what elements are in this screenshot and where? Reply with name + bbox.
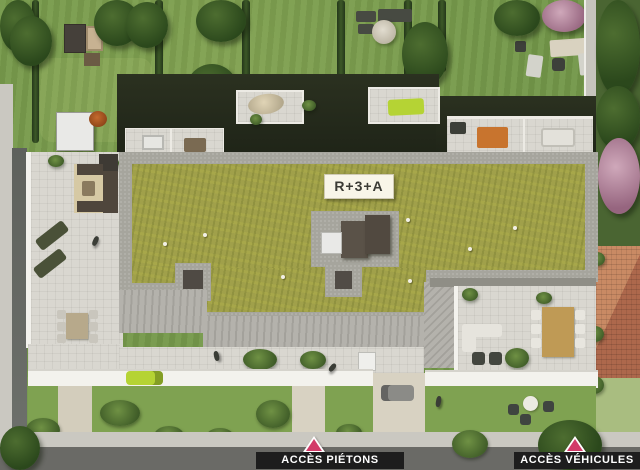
skylight: [321, 232, 342, 254]
chair: [520, 414, 531, 425]
side-table: [82, 181, 95, 196]
neighbour-roof: [596, 246, 640, 380]
chair: [508, 404, 519, 415]
orange-rug: [477, 127, 508, 148]
planter-bush: [250, 114, 262, 125]
pedestrian-access-marker[interactable]: [303, 436, 325, 452]
car-gray: [381, 385, 414, 401]
wall-shadow: [12, 148, 27, 430]
tree: [494, 0, 540, 36]
planter: [450, 122, 466, 134]
bush: [300, 351, 326, 369]
roof-vent: [163, 242, 167, 246]
bush: [256, 400, 290, 428]
orange-shrub: [89, 111, 107, 127]
tree: [10, 16, 52, 66]
vehicle-access-marker[interactable]: [564, 436, 586, 452]
chair: [575, 310, 585, 320]
tree: [196, 0, 246, 42]
bush: [452, 430, 488, 458]
chair: [57, 310, 66, 319]
building-lot-label[interactable]: R+3+A: [324, 174, 394, 199]
ottoman: [489, 352, 502, 365]
chair: [57, 334, 66, 343]
kitchen-counter: [77, 164, 103, 175]
garden-sofa: [356, 11, 376, 22]
dining-table: [66, 313, 88, 339]
bush: [462, 288, 478, 301]
dining-table: [542, 307, 574, 357]
chair: [531, 338, 541, 348]
sloped-roof: [424, 282, 458, 368]
green-roof: [132, 266, 180, 283]
outdoor-sofa: [462, 324, 476, 352]
rooftop-equipment: [341, 221, 368, 258]
roof-vent: [281, 275, 285, 279]
skylight: [183, 270, 203, 289]
sloped-roof: [119, 290, 207, 333]
planter-bush: [302, 100, 316, 111]
ground-path: [28, 344, 120, 370]
tree: [126, 2, 168, 48]
kitchen-counter: [77, 201, 106, 212]
roof-vent: [408, 279, 412, 283]
chair: [575, 324, 585, 334]
roof-vent: [406, 218, 410, 222]
roof-vent: [513, 226, 517, 230]
bush: [48, 155, 64, 167]
terrace-sofa: [184, 138, 206, 152]
garden-plot: [84, 53, 100, 66]
chair: [575, 338, 585, 348]
pedestrian-access-label: ACCÈS PIÉTONS: [256, 452, 404, 469]
skylight: [335, 271, 352, 289]
chair: [543, 401, 554, 412]
fire-pit: [552, 58, 565, 71]
terrace-divider: [523, 118, 525, 154]
bush: [505, 348, 529, 368]
sun-lounger: [526, 54, 544, 78]
tree: [596, 0, 640, 96]
chair: [531, 324, 541, 334]
parasol: [372, 20, 396, 44]
terrace-dining-set: [541, 128, 575, 147]
bush: [536, 292, 552, 304]
chair: [89, 322, 98, 331]
garden-table: [523, 396, 538, 411]
chair: [531, 310, 541, 320]
bush: [100, 400, 140, 426]
sloped-roof: [203, 316, 437, 349]
roof-vent: [203, 233, 207, 237]
flowering-tree: [542, 0, 586, 32]
lime-lounger: [388, 98, 425, 116]
roof-vent: [468, 247, 472, 251]
garden-plot: [64, 24, 86, 53]
flowering-tree: [598, 138, 640, 214]
ottoman: [472, 352, 485, 365]
garden-path: [58, 386, 92, 436]
tree: [0, 426, 40, 470]
vehicle-access-label: ACCÈS VÉHICULES: [514, 452, 640, 469]
green-roof: [206, 268, 426, 312]
terrace-table: [142, 135, 164, 150]
site-plan: R+3+A ACCÈS PIÉTONS ACCÈS VÉHICULES: [0, 0, 640, 470]
bush: [243, 349, 277, 370]
chair: [89, 310, 98, 319]
chair: [57, 322, 66, 331]
chair: [89, 334, 98, 343]
rooftop-equipment: [365, 215, 390, 254]
planter: [515, 41, 526, 52]
car-green: [126, 371, 163, 385]
